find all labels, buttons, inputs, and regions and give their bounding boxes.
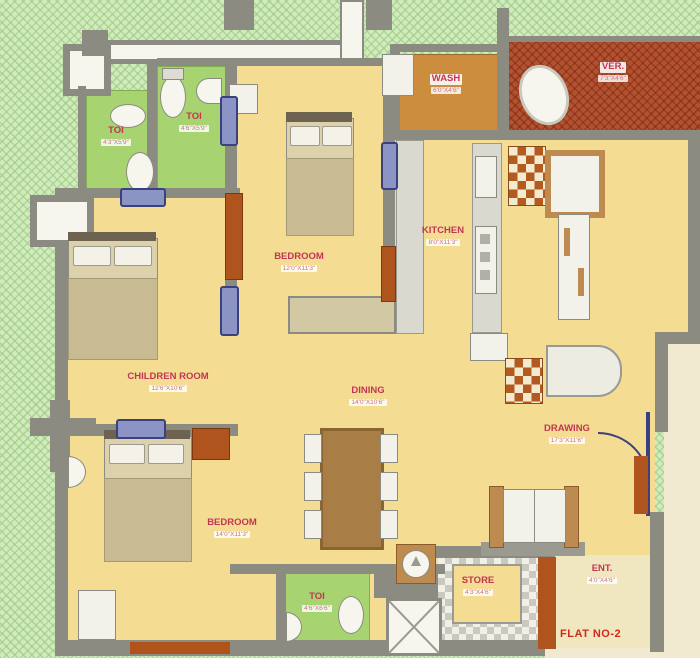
bed-blanket [286,158,354,236]
wall-toilets-top [157,58,397,66]
room-dims: 7'3"X4'6" [598,75,628,82]
bed-pillow-icon [290,126,320,146]
bed-headboard [68,232,156,241]
room-dims: 14'0"X10'6" [349,399,386,406]
sofa-arm-icon [564,486,579,548]
dresser-table [78,590,116,640]
wall-toilet3-left [276,572,286,652]
wardrobe-bottom-bedroom [192,428,230,460]
room-label-toi-3: TOI 4'6"X6'6" [292,592,342,614]
wall-bedroomtop-right-b [383,186,395,248]
bed-pillow-icon [109,444,145,464]
door-bottom-terrace [130,642,230,654]
room-name: DRAWING [544,423,590,434]
door-children-room [220,286,239,336]
bed-pillow-icon [114,246,152,266]
dining-chair [304,472,322,501]
wall-right-below-door [650,512,664,652]
bed-pillow-icon [148,444,184,464]
flat-number-label: FLAT NO-2 [560,628,621,640]
room-name: STORE [462,575,495,586]
sofa-cushion [534,489,566,543]
wall-outer-bottom [55,640,545,656]
room-label-bedroom-bottom: BEDROOM 14'0"X11'3" [190,518,274,540]
sofa-arm-icon [489,486,504,548]
wall-wash-top [390,44,502,52]
tv-unit [545,150,605,218]
cabinet-handle-icon [578,268,584,296]
room-name: DINING [351,385,384,396]
room-label-store: STORE 4'3"X4'6" [446,576,510,598]
bed-blanket [68,278,158,360]
wall-outer-right-a [688,130,700,340]
column-top-1 [224,0,254,30]
column-top-2 [366,0,392,30]
door-toilets [120,188,166,207]
room-dims: 4'3"X4'6" [463,589,493,596]
room-name: TOI [108,125,124,136]
kitchen-platform-tiles [508,146,546,206]
stove-burner-icon [480,252,490,262]
corner-table-tiles [505,358,543,404]
room-dims: 12'6"X10'6" [149,385,186,392]
room-dims: 6'0"X4'6" [431,87,461,94]
wall-cross-stub [50,400,70,472]
room-label-wash: WASH 6'0"X4'6" [412,74,480,96]
room-name: WASH [430,74,463,85]
sofa-cushion [503,489,535,543]
side-table [470,333,508,361]
entrance-door-leaf [634,456,648,514]
bed-pillow-icon [73,246,111,266]
room-name: ENT. [592,563,613,574]
room-label-kitchen: KITCHEN 8'0"X11'3" [406,226,480,248]
room-dims: 8'0"X11'3" [426,239,459,246]
bed-blanket [104,478,192,562]
stove-burner-icon [480,270,490,280]
room-dims: 4'3"X5'9" [101,139,131,146]
duct-top [340,0,364,60]
dining-chair [304,510,322,539]
door-kitchen-side [381,246,396,302]
exterior-adjacent-area [664,332,700,658]
door-ent-left [538,557,556,649]
tall-cabinet [558,214,590,320]
room-name: BEDROOM [207,517,257,528]
wardrobe-top-bedroom [288,296,396,334]
door-top-bedroom [381,142,398,190]
room-label-dining: DINING 14'0"X10'6" [336,386,400,408]
kitchen-sink-icon [475,156,497,198]
duct-shaft [386,598,442,656]
room-dims: 4'6"X6'6" [302,605,332,612]
cabinet-handle-icon [564,228,570,256]
column-left-top [82,30,108,56]
exterior-bottom-strip [545,648,700,658]
toilet-1-pan-icon [126,152,154,192]
room-name: TOI [309,591,325,602]
stove-burner-icon [480,234,490,244]
room-name: VER. [600,62,626,73]
dining-chair [380,472,398,501]
room-dims: 14'0"X11'3" [214,531,251,538]
bed-headboard [286,112,352,122]
basin-tap-icon [411,556,421,566]
room-label-children-room: CHILDREN ROOM 12'6"X10'6" [104,372,232,394]
wall-wash-ver-divider [497,8,509,138]
washing-machine-icon [382,54,414,96]
room-name: KITCHEN [422,225,464,236]
toilet-2-basin-icon [196,78,222,104]
room-name: BEDROOM [274,251,324,262]
wall-ver-bottom [497,130,700,140]
room-label-drawing: DRAWING 17'3"X11'6" [528,424,606,446]
room-label-verandah: VER. 7'3"X4'6" [582,62,644,84]
dining-chair [380,434,398,463]
room-name: TOI [186,111,202,122]
room-name: CHILDREN ROOM [127,371,208,382]
room-label-toi-2: TOI 4'6"X5'9" [158,112,230,134]
wardrobe-children [225,193,243,280]
dining-chair [380,510,398,539]
room-label-toi-1: TOI 4'3"X5'9" [84,126,148,148]
room-label-bedroom-top: BEDROOM 12'0"X11'3" [256,252,342,274]
room-dims: 4'6"X5'9" [179,125,209,132]
wall-outer-right-b [655,332,668,432]
dining-table [320,428,384,550]
floor-plan: TOI 4'3"X5'9" TOI 4'6"X5'9" BEDROOM 12'0… [0,0,700,658]
sofa-single [546,345,622,397]
shaft-cross-icon [389,601,439,653]
bed-pillow-icon [322,126,352,146]
dining-chair [304,434,322,463]
room-dims: 4'0"X4'6" [587,577,617,584]
wall-ver-top [509,36,700,42]
toilet-2-cistern-icon [162,68,184,80]
door-bedroom-divider [116,419,166,439]
room-dims: 12'0"X11'3" [281,265,318,272]
room-dims: 17'3"X11'6" [549,437,586,444]
room-label-entrance: ENT. 4'0"X4'6" [574,564,630,586]
